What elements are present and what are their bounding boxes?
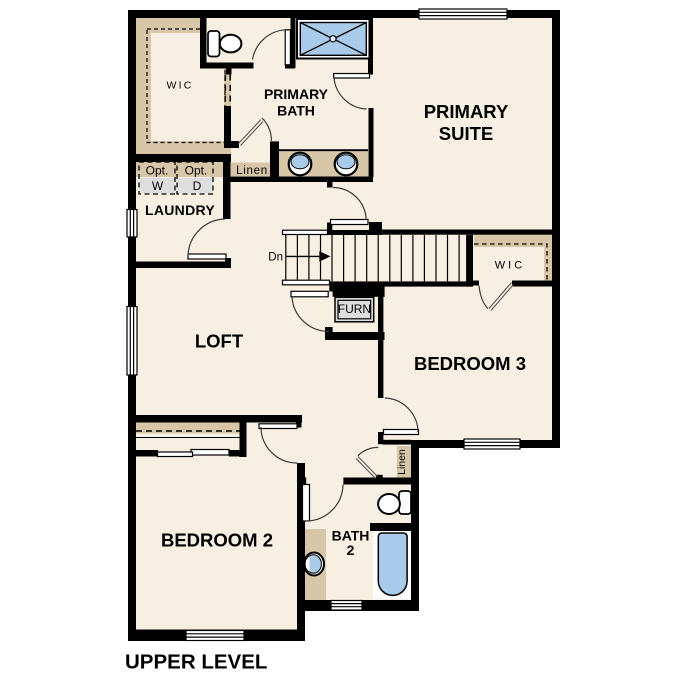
svg-text:SUITE: SUITE xyxy=(439,123,493,144)
svg-text:LAUNDRY: LAUNDRY xyxy=(145,202,215,218)
svg-text:PRIMARY: PRIMARY xyxy=(424,101,509,122)
svg-text:BATH: BATH xyxy=(277,103,315,119)
svg-text:BEDROOM 3: BEDROOM 3 xyxy=(414,353,526,374)
svg-text:PRIMARY: PRIMARY xyxy=(264,86,329,102)
svg-text:WIC: WIC xyxy=(495,260,525,272)
svg-text:Opt.: Opt. xyxy=(185,164,208,178)
svg-text:WIC: WIC xyxy=(166,80,193,92)
svg-text:UPPER LEVEL: UPPER LEVEL xyxy=(125,651,267,674)
svg-text:2: 2 xyxy=(347,542,355,558)
svg-text:Linen: Linen xyxy=(396,449,408,475)
svg-text:W: W xyxy=(152,179,164,193)
svg-text:Dn: Dn xyxy=(268,251,283,263)
svg-text:FURN: FURN xyxy=(338,302,371,316)
svg-text:Linen: Linen xyxy=(236,165,268,177)
svg-text:Opt.: Opt. xyxy=(146,164,169,178)
svg-text:BEDROOM 2: BEDROOM 2 xyxy=(161,530,273,551)
svg-text:D: D xyxy=(193,179,202,193)
svg-text:LOFT: LOFT xyxy=(195,331,244,352)
